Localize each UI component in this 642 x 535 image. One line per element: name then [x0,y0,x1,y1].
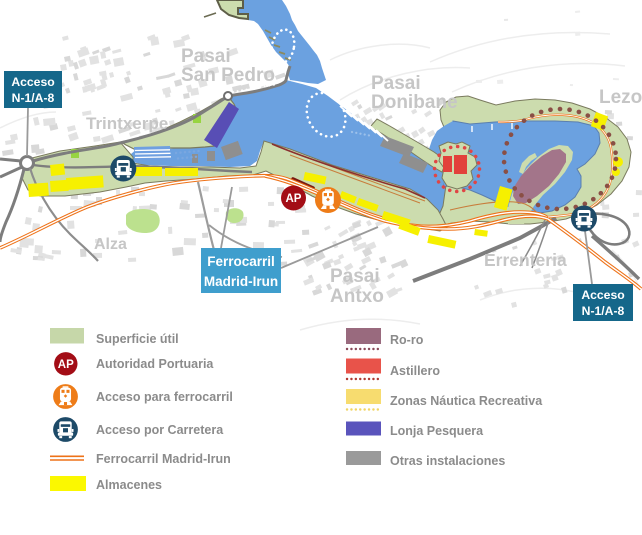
svg-text:San Pedro: San Pedro [181,65,275,86]
svg-text:Donibane: Donibane [371,92,458,113]
svg-text:Autoridad Portuaria: Autoridad Portuaria [96,357,214,371]
svg-text:Antxo: Antxo [330,286,384,307]
svg-text:Otras instalaciones: Otras instalaciones [390,454,505,468]
svg-text:AP: AP [286,193,302,205]
svg-text:Ferrocarril: Ferrocarril [207,254,275,269]
svg-text:Ro-ro: Ro-ro [390,333,424,347]
svg-text:Zonas Náutica Recreativa: Zonas Náutica Recreativa [390,394,543,408]
svg-text:Acceso para ferrocarril: Acceso para ferrocarril [96,390,233,404]
svg-text:Pasai: Pasai [181,46,231,67]
svg-text:Almacenes: Almacenes [96,478,162,492]
svg-text:AP: AP [58,359,74,371]
svg-text:Alza: Alza [94,236,127,253]
svg-text:Acceso por Carretera: Acceso por Carretera [96,423,224,437]
svg-text:Ferrocarril Madrid-Irun: Ferrocarril Madrid-Irun [96,452,231,466]
svg-text:Superficie útil: Superficie útil [96,332,179,346]
svg-text:N-1/A-8: N-1/A-8 [12,91,55,105]
svg-text:Lezo: Lezo [599,87,642,108]
svg-text:N-1/A-8: N-1/A-8 [582,304,625,318]
svg-text:Trintxerpe: Trintxerpe [86,114,168,133]
svg-text:Acceso: Acceso [11,75,54,89]
svg-text:Astillero: Astillero [390,364,440,378]
svg-text:Lonja Pesquera: Lonja Pesquera [390,424,484,438]
svg-text:Pasai: Pasai [330,266,380,287]
svg-text:Errenteria: Errenteria [484,250,567,270]
svg-text:Pasai: Pasai [371,73,421,94]
svg-text:Acceso: Acceso [581,288,624,302]
svg-text:Madrid-Irun: Madrid-Irun [204,274,278,289]
